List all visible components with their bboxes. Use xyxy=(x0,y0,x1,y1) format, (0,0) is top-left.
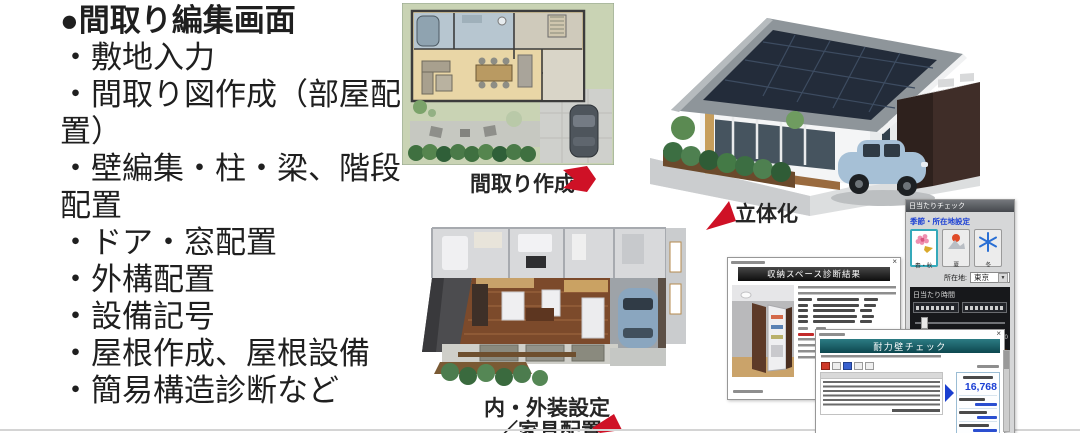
toolbar-icon[interactable] xyxy=(854,362,863,370)
wall-dialog-titlebar[interactable]: × xyxy=(816,330,1004,338)
chevron-down-icon: ▼ xyxy=(998,273,1008,283)
storage-result-header: 収納スペース診断結果 xyxy=(738,267,890,281)
season-location-label: 季節・所在地設定 xyxy=(910,216,1010,227)
slider-thumb[interactable] xyxy=(921,317,928,329)
sunlight-time-label: 日当たり時間 xyxy=(913,290,1007,300)
bullet-line: ・設備記号 xyxy=(60,298,410,335)
season-button-row: 春・秋 夏 xyxy=(910,229,1010,267)
toolbar-icon[interactable] xyxy=(832,362,841,370)
interior-3d-image xyxy=(414,222,688,399)
summary-group xyxy=(959,395,997,406)
season-summer-label: 夏 xyxy=(953,260,959,269)
flower-icon xyxy=(914,233,934,260)
closet-image xyxy=(732,285,794,382)
wall-toolbar xyxy=(821,362,999,370)
label-extrude: 立体化 xyxy=(735,198,798,228)
season-spring-autumn-label: 春・秋 xyxy=(915,261,933,270)
sunlight-dialog-titlebar[interactable]: 日当たりチェック xyxy=(906,200,1014,212)
slider-track[interactable] xyxy=(915,322,1005,324)
location-dropdown[interactable]: 東京 ▼ xyxy=(970,272,1010,283)
page-title: ●間取り編集画面 xyxy=(60,2,410,39)
wall-check-dialog: × 耐力壁チェック 16,768 xyxy=(815,329,1005,433)
bullet-line: ・壁編集・柱・梁、階段 xyxy=(60,150,410,187)
snowflake-icon xyxy=(978,232,998,259)
storage-footer-text xyxy=(733,390,763,393)
wall-result-table xyxy=(820,372,943,415)
label-floorplan: 間取り作成 xyxy=(470,168,575,198)
table-total-row xyxy=(892,409,940,412)
arrow-right-icon xyxy=(563,166,597,198)
next-page-arrow-icon[interactable] xyxy=(945,384,954,402)
slide-canvas: ●間取り編集画面 ・敷地入力 ・間取り図作成（部屋配 置） ・壁編集・柱・梁、階… xyxy=(0,0,1080,433)
time-slider xyxy=(913,316,1007,328)
bullet-line: ・間取り図作成（部屋配 xyxy=(60,76,410,113)
sunset-field xyxy=(962,302,1008,313)
bullet-line: ・ドア・窓配置 xyxy=(60,224,410,261)
wall-check-header: 耐力壁チェック xyxy=(820,339,1000,353)
close-icon[interactable]: × xyxy=(996,331,1001,337)
summary-group xyxy=(959,408,997,419)
sun-mountain-icon xyxy=(946,232,966,259)
scrollbar-thumb[interactable] xyxy=(1004,351,1009,369)
wall-summary-panel: 16,768 xyxy=(956,372,1000,433)
close-icon[interactable]: × xyxy=(892,259,897,265)
summary-big-value: 16,768 xyxy=(959,381,997,393)
bullet-line: ・簡易構造診断など xyxy=(60,372,410,409)
bullet-line: ・敷地入力 xyxy=(60,39,410,76)
bullet-line: ・屋根作成、屋根設備 xyxy=(60,335,410,372)
table-rows xyxy=(823,381,940,407)
wall-description-text xyxy=(821,355,941,360)
storage-dialog-title-placeholder xyxy=(731,261,765,264)
summary-title-placeholder xyxy=(963,376,993,379)
wall-dialog-title-placeholder xyxy=(819,333,845,336)
toolbar-blue-icon[interactable] xyxy=(843,362,852,370)
bullet-line: 配置 xyxy=(60,187,410,224)
storage-dialog-titlebar[interactable]: × xyxy=(728,258,900,266)
floorplan-image xyxy=(402,3,614,170)
sunlight-dialog-title: 日当たりチェック xyxy=(909,201,965,211)
summary-group xyxy=(959,421,997,432)
storage-description-text xyxy=(798,286,896,295)
location-value: 東京 xyxy=(974,272,989,283)
season-spring-autumn-button[interactable]: 春・秋 xyxy=(910,229,938,267)
season-winter-button[interactable]: 冬 xyxy=(974,229,1002,267)
toolbar-icon[interactable] xyxy=(865,362,874,370)
storage-result-table xyxy=(798,298,896,323)
location-label: 所在地: xyxy=(944,273,967,283)
season-summer-button[interactable]: 夏 xyxy=(942,229,970,267)
table-header-row xyxy=(821,373,942,379)
bullet-line: ・外構配置 xyxy=(60,261,410,298)
bullet-line: 置） xyxy=(60,113,410,150)
house-3d-image xyxy=(645,0,980,223)
scrollbar[interactable] xyxy=(1003,350,1010,432)
toolbar-right-text xyxy=(977,365,999,368)
feature-list: ●間取り編集画面 ・敷地入力 ・間取り図作成（部屋配 置） ・壁編集・柱・梁、階… xyxy=(60,2,410,409)
season-winter-label: 冬 xyxy=(985,260,991,269)
sunrise-field xyxy=(913,302,959,313)
arrow-upleft-icon xyxy=(706,201,736,236)
toolbar-red-icon[interactable] xyxy=(821,362,830,370)
